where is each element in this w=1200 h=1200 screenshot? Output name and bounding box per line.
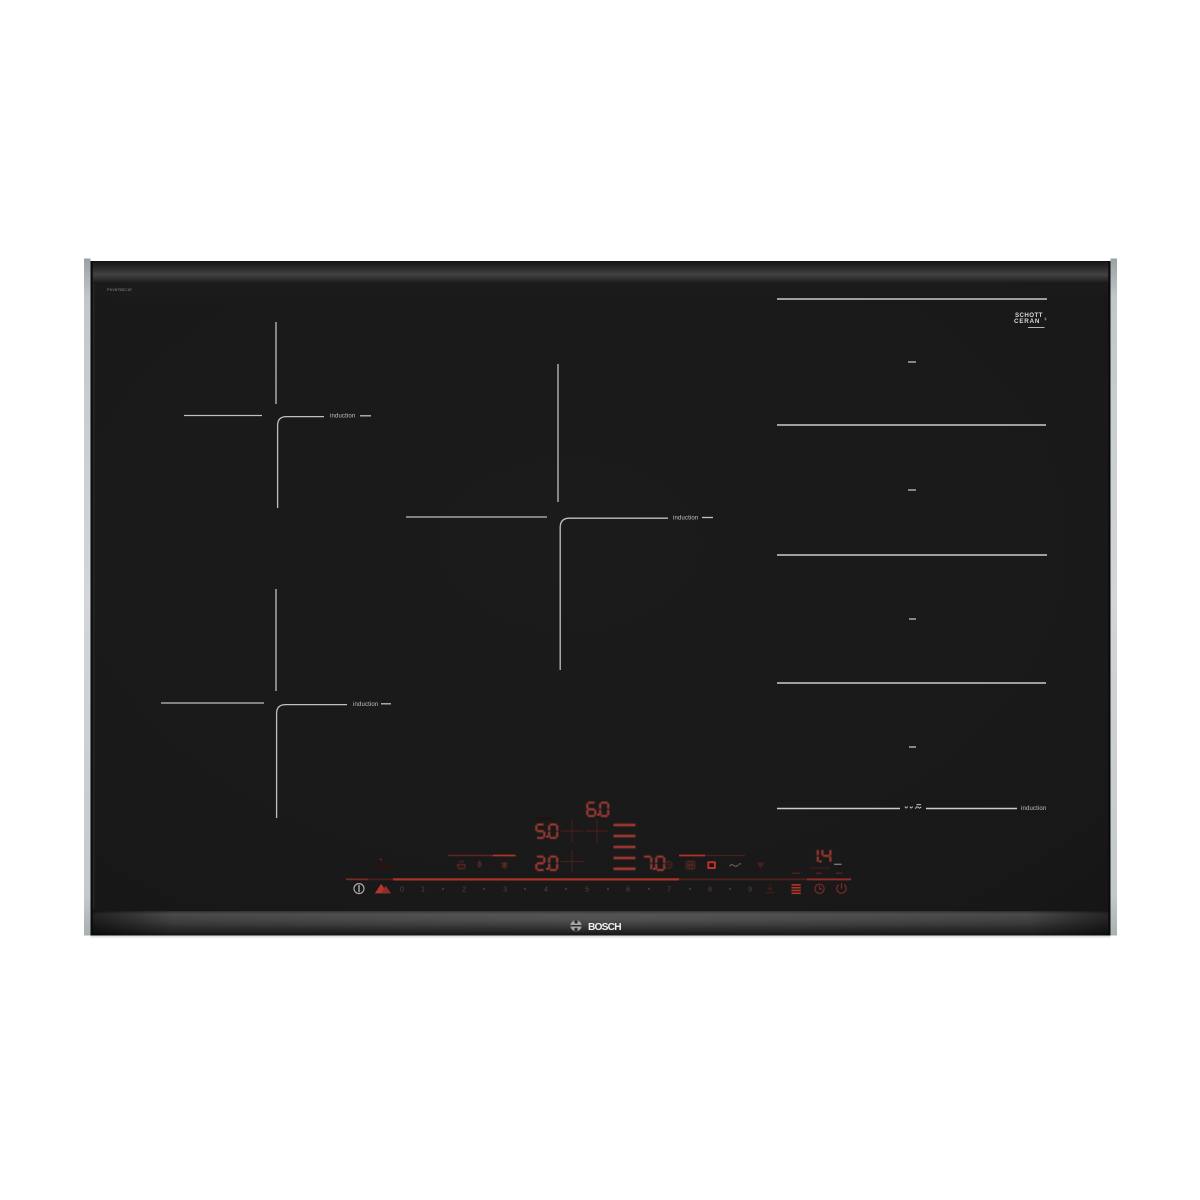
svg-text:9: 9 <box>748 887 752 894</box>
svg-text:2: 2 <box>462 887 466 894</box>
svg-text:7: 7 <box>667 887 671 894</box>
svg-text:1: 1 <box>421 887 425 894</box>
svg-text:induction: induction <box>330 414 355 420</box>
svg-text:induction: induction <box>1021 806 1046 812</box>
svg-text:induction: induction <box>673 515 698 521</box>
svg-text:CERAN: CERAN <box>1014 318 1040 325</box>
svg-text:0: 0 <box>400 887 404 894</box>
svg-text:4: 4 <box>544 887 548 894</box>
svg-text:5: 5 <box>585 887 589 894</box>
svg-text:induction: induction <box>353 702 378 708</box>
svg-text:8: 8 <box>708 887 712 894</box>
svg-text:6: 6 <box>626 887 630 894</box>
svg-text:BOSCH: BOSCH <box>588 922 622 933</box>
svg-text:3: 3 <box>503 887 507 894</box>
svg-text:PXV875DC1E: PXV875DC1E <box>107 288 132 292</box>
